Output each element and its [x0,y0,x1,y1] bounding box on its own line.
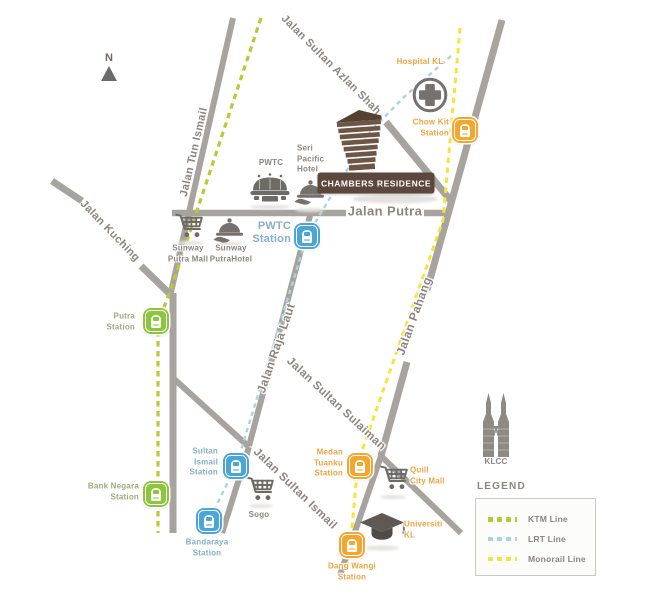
bandaraya-station [196,508,222,534]
monorail-line-swatch-icon [488,557,517,562]
sultan-ismail-station-label: Sultan Ismail Station [189,446,218,478]
legend-title: LEGEND [477,481,596,492]
quill-city-mall-shadow [380,495,406,499]
sunway-putra-mall-label: Sunway Putra Mall [168,244,208,265]
ktm-line-legend-label: KTM Line [528,514,568,524]
chambers-residence-shadow [352,195,438,204]
pwtc-label: PWTC [259,158,283,169]
universiti-kl-shadow [365,546,399,551]
sogo-shadow [249,504,273,508]
train-icon [151,315,161,328]
train-icon [355,460,365,473]
universiti-kl-icon [358,512,406,544]
train-icon [302,230,312,243]
legend-box: KTM LineLRT LineMonorail Line [475,498,596,576]
dang-wangi-station [339,532,365,558]
sogo-icon [246,475,276,504]
sunway-putra-mall-icon [175,212,205,241]
putra-station-label: Putra Station [106,312,135,333]
klcc-icon [479,391,513,457]
road-jalan-kuching-west [52,181,82,201]
north-indicator: N [96,52,122,81]
ktm-line-swatch-icon [488,517,517,522]
kl-transit-location-map: N LEGEND KTM LineLRT LineMonorail Line J… [0,0,661,600]
lrt-line-swatch-icon [488,537,517,541]
legend-item-lrt-line: LRT Line [488,529,595,549]
medan-tuanku-station-label: Medan Tuanku Station [314,447,343,479]
sogo-label: Sogo [249,510,270,521]
sunway-putra-hotel-label: Sunway PutraHotel [210,244,252,265]
train-icon [151,488,161,501]
chow-kit-station [452,117,478,143]
sunway-putra-hotel-icon [212,218,246,245]
quill-city-mall-label: Quill City Mall [410,466,445,487]
train-icon [347,539,357,552]
sultan-ismail-station [223,453,249,479]
chambers-residence-label: CHAMBERS RESIDENCE [318,173,435,194]
north-arrow-icon [101,66,117,81]
chow-kit-station-label: Chow Kit Station [413,118,449,139]
lrt-line-legend-label: LRT Line [528,534,566,544]
putra-station [143,308,169,334]
north-label: N [96,52,122,64]
klcc-label: KLCC [484,457,507,468]
legend: LEGEND KTM LineLRT LineMonorail Line [475,481,596,576]
pwtc-shadow [250,205,290,209]
legend-item-ktm-line: KTM Line [488,509,595,529]
hospital-kl-label: Hospital KL [397,57,444,68]
medan-tuanku-station [347,453,373,479]
dang-wangi-station-label: Dang Wangi Station [328,562,376,583]
road-label-jalan-putra: Jalan Putra [348,204,423,219]
train-icon [204,515,214,528]
train-icon [460,124,470,137]
bank-negara-station [143,481,169,507]
hospital-kl-icon [411,76,449,114]
chambers-residence-icon [333,108,387,170]
train-icon [231,460,241,473]
pwtc-station [294,223,320,249]
pwtc-station-label: PWTC Station [252,220,291,246]
universiti-kl-label: Universiti KL [404,520,442,541]
seri-pacific-hotel-label: Seri Pacific Hotel [297,143,324,175]
road-cross-branch [172,377,249,447]
quill-city-mall-icon [380,464,410,493]
pwtc-icon [249,173,291,204]
legend-item-monorail-line: Monorail Line [488,549,595,569]
bank-negara-station-label: Bank Negara Station [88,482,139,503]
seri-pacific-hotel-shadow [295,208,325,212]
bandaraya-station-label: Bandaraya Station [186,538,229,559]
monorail-line-legend-label: Monorail Line [528,554,586,564]
